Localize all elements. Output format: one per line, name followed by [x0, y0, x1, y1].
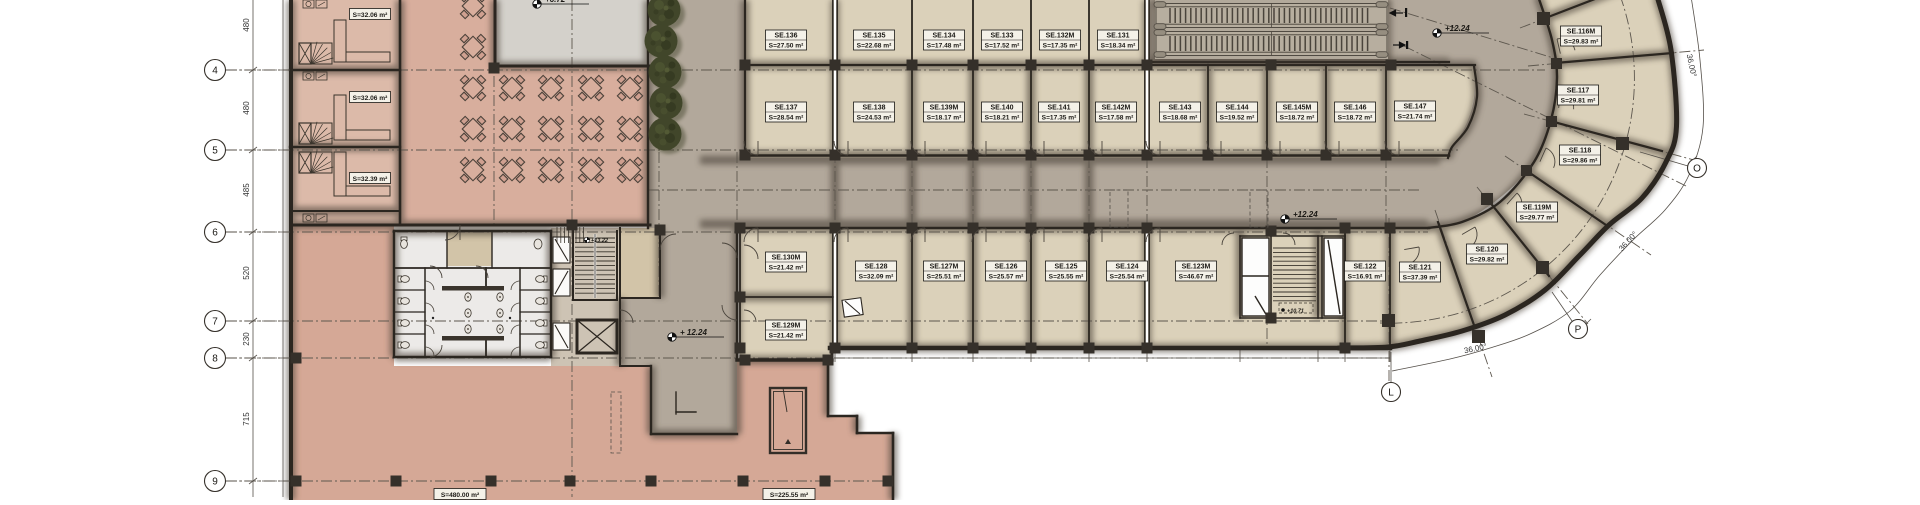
svg-text:S=21.42 m²: S=21.42 m² [769, 265, 804, 272]
svg-text:S=480.00 m²: S=480.00 m² [441, 492, 480, 499]
svg-text:+10.71: +10.71 [1287, 309, 1304, 315]
svg-text:S=32.06 m²: S=32.06 m² [353, 12, 388, 19]
svg-text:SE.125: SE.125 [1055, 264, 1078, 271]
svg-text:S=16.91 m²: S=16.91 m² [1348, 274, 1383, 281]
svg-text:SE.121: SE.121 [1409, 265, 1432, 272]
svg-text:480: 480 [242, 101, 251, 115]
svg-text:L: L [1388, 388, 1394, 399]
svg-text:SE.144: SE.144 [1226, 105, 1249, 112]
svg-text:715: 715 [242, 412, 251, 426]
svg-text:SE.131: SE.131 [1107, 33, 1130, 40]
svg-text:SE.120: SE.120 [1476, 247, 1499, 254]
svg-text:S=17.35 m²: S=17.35 m² [1042, 115, 1077, 122]
svg-text:S=18.68 m²: S=18.68 m² [1163, 115, 1198, 122]
svg-text:SE.138: SE.138 [863, 105, 886, 112]
svg-text:S=225.55 m²: S=225.55 m² [770, 492, 809, 499]
svg-text:S=32.39 m²: S=32.39 m² [353, 176, 388, 183]
svg-text:S=18.17 m²: S=18.17 m² [927, 115, 962, 122]
svg-text:S=29.83 m²: S=29.83 m² [1564, 39, 1599, 46]
svg-text:SE.118: SE.118 [1569, 148, 1592, 155]
svg-text:S=18.34 m²: S=18.34 m² [1101, 43, 1136, 50]
svg-text:+6.72: +6.72 [545, 0, 566, 4]
svg-text:SE.139M: SE.139M [930, 105, 959, 112]
svg-text:S=17.52 m²: S=17.52 m² [985, 43, 1020, 50]
svg-text:SE.145M: SE.145M [1283, 105, 1312, 112]
svg-text:S=29.86 m²: S=29.86 m² [1563, 158, 1598, 165]
svg-text:S=37.39 m²: S=37.39 m² [1403, 275, 1438, 282]
svg-text:SE.133: SE.133 [991, 33, 1014, 40]
svg-text:36.00°: 36.00° [1617, 230, 1639, 253]
svg-text:S=25.54 m²: S=25.54 m² [1110, 274, 1145, 281]
svg-text:S=25.57 m²: S=25.57 m² [989, 274, 1024, 281]
svg-text:+13.22: +13.22 [591, 238, 608, 244]
svg-text:SE.136: SE.136 [775, 33, 798, 40]
svg-text:S=17.35 m²: S=17.35 m² [1043, 43, 1078, 50]
svg-text:SE.132M: SE.132M [1046, 33, 1075, 40]
svg-text:S=28.54 m²: S=28.54 m² [769, 115, 804, 122]
svg-text:SE.127M: SE.127M [930, 264, 959, 271]
svg-text:S=25.51 m²: S=25.51 m² [927, 274, 962, 281]
svg-text:SE.130M: SE.130M [772, 255, 801, 262]
svg-text:+ 12.24: + 12.24 [680, 328, 707, 337]
svg-text:SE.147: SE.147 [1404, 104, 1427, 111]
svg-text:7: 7 [212, 317, 218, 328]
svg-text:S=18.21 m²: S=18.21 m² [985, 115, 1020, 122]
svg-text:9: 9 [212, 477, 218, 488]
svg-text:S=29.82 m²: S=29.82 m² [1470, 257, 1505, 264]
svg-text:480: 480 [242, 18, 251, 32]
svg-text:S=19.52 m²: S=19.52 m² [1220, 115, 1255, 122]
svg-text:P: P [1575, 325, 1582, 336]
svg-text:SE.126: SE.126 [995, 264, 1018, 271]
svg-text:SE.123M: SE.123M [1182, 264, 1211, 271]
svg-text:SE.135: SE.135 [863, 33, 886, 40]
svg-text:SE.117: SE.117 [1567, 88, 1590, 95]
svg-text:S=27.50 m²: S=27.50 m² [769, 43, 804, 50]
svg-text:SE.134: SE.134 [933, 33, 956, 40]
svg-text:36.00°: 36.00° [1685, 53, 1699, 78]
svg-text:485: 485 [242, 183, 251, 197]
svg-text:SE.129M: SE.129M [772, 323, 801, 330]
svg-text:SE.137: SE.137 [775, 105, 798, 112]
svg-text:SE.128: SE.128 [865, 264, 888, 271]
svg-text:SE.143: SE.143 [1169, 105, 1192, 112]
svg-text:S=29.81 m²: S=29.81 m² [1561, 98, 1596, 105]
svg-text:+12.24: +12.24 [1445, 24, 1470, 33]
svg-text:5: 5 [212, 146, 218, 157]
svg-text:S=24.53 m²: S=24.53 m² [857, 115, 892, 122]
svg-text:4: 4 [212, 66, 218, 77]
svg-text:S=22.68 m²: S=22.68 m² [857, 43, 892, 50]
svg-text:36.00°: 36.00° [1463, 342, 1488, 356]
svg-text:SE.119M: SE.119M [1523, 205, 1552, 212]
svg-text:SE.140: SE.140 [991, 105, 1014, 112]
svg-text:SE.122: SE.122 [1354, 264, 1377, 271]
svg-text:SE.116M: SE.116M [1567, 29, 1596, 36]
svg-text:S=17.58 m²: S=17.58 m² [1099, 115, 1134, 122]
svg-text:S=32.09 m²: S=32.09 m² [859, 274, 894, 281]
svg-text:6: 6 [212, 228, 218, 239]
svg-text:O: O [1693, 164, 1701, 175]
svg-text:8: 8 [212, 354, 218, 365]
svg-text:520: 520 [242, 266, 251, 280]
svg-text:230: 230 [242, 332, 251, 346]
svg-text:SE.142M: SE.142M [1102, 105, 1131, 112]
svg-text:S=18.72 m²: S=18.72 m² [1338, 115, 1373, 122]
svg-text:SE.124: SE.124 [1116, 264, 1139, 271]
svg-text:SE.141: SE.141 [1048, 105, 1071, 112]
svg-text:S=21.42 m²: S=21.42 m² [769, 333, 804, 340]
svg-text:S=32.06 m²: S=32.06 m² [353, 95, 388, 102]
svg-text:S=17.48 m²: S=17.48 m² [927, 43, 962, 50]
svg-text:S=29.77 m²: S=29.77 m² [1520, 215, 1555, 222]
svg-text:S=21.74 m²: S=21.74 m² [1398, 114, 1433, 121]
svg-text:S=46.67 m²: S=46.67 m² [1179, 274, 1214, 281]
svg-text:S=25.55 m²: S=25.55 m² [1049, 274, 1084, 281]
svg-text:S=18.72 m²: S=18.72 m² [1280, 115, 1315, 122]
svg-text:SE.146: SE.146 [1344, 105, 1367, 112]
svg-text:+12.24: +12.24 [1293, 210, 1318, 219]
